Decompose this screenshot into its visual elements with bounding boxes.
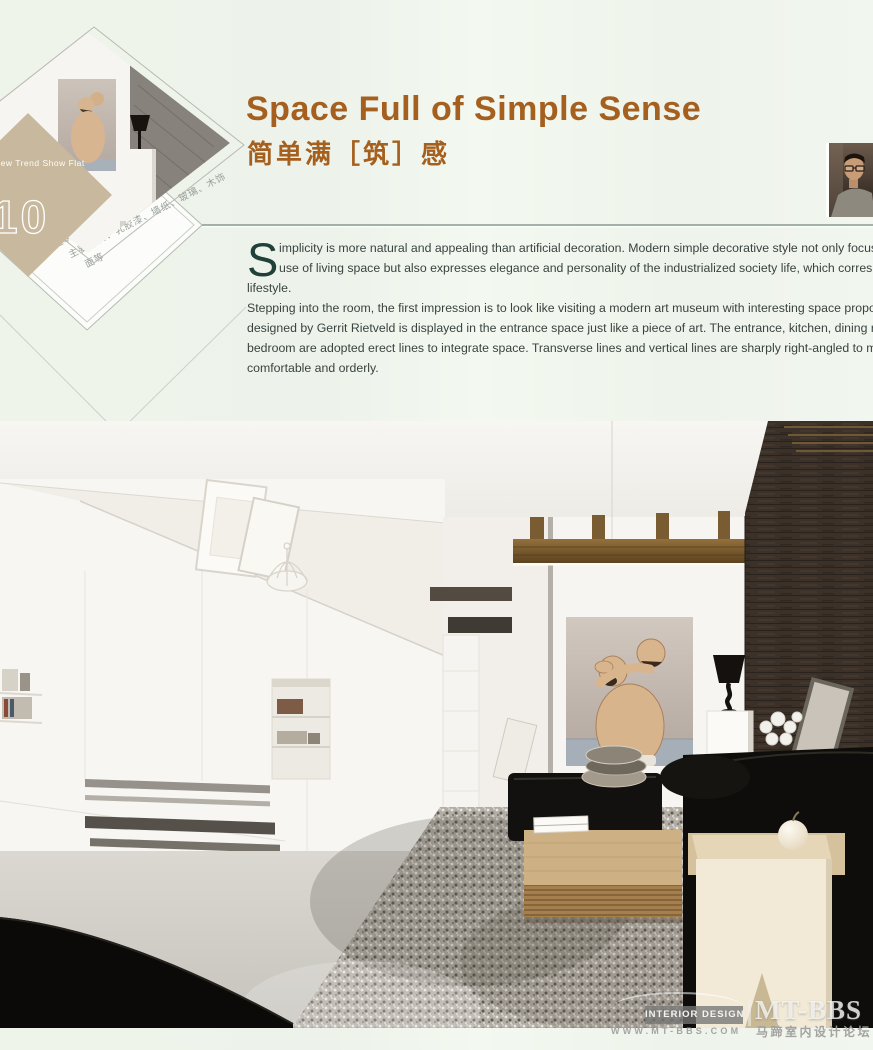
faint-diamond-outline	[0, 305, 246, 433]
page-subtitle-cn: 简单满［筑］感	[247, 134, 450, 171]
watermark-badge: INTERIOR DESIGN	[645, 1006, 743, 1024]
metallic-pillows	[582, 746, 646, 787]
watermark-divider	[748, 999, 751, 1026]
series-label: New Trend Show Flat	[0, 158, 85, 168]
magazine-page: 设计公司：C.DD（尺道）设计师事务所 设 计 师：杨铭斌 项目地点：广东佛山 …	[0, 0, 873, 1050]
article-line: Stepping into the room, the first impres…	[247, 298, 873, 318]
coffee-table	[524, 830, 682, 923]
article-line: lifestyle.	[247, 278, 873, 298]
series-number: 10	[0, 191, 49, 243]
page-title: Space Full of Simple Sense	[246, 90, 701, 129]
painting	[566, 617, 693, 768]
article: implicity is more natural and appealing …	[247, 238, 873, 394]
magazine	[534, 816, 588, 833]
shelf-niche	[272, 679, 330, 779]
article-line: bedroom are adopted erect lines to integ…	[247, 338, 873, 358]
article-line: designed by Gerrit Rietveld is displayed…	[247, 318, 873, 338]
watermark-brand: MT-BBS	[755, 995, 862, 1026]
separator-line	[202, 225, 873, 227]
watermark-site-cn: 马蹄室内设计论坛	[756, 1023, 872, 1040]
article-line: implicity is more natural and appealing …	[247, 238, 873, 258]
article-line: comfortable and orderly.	[247, 358, 873, 378]
watermark-url: WWW.MT-BBS.COM	[611, 1026, 741, 1036]
article-line: use of living space but also expresses e…	[247, 258, 873, 278]
living-room-photo	[0, 421, 873, 1028]
designer-portrait	[826, 143, 873, 217]
